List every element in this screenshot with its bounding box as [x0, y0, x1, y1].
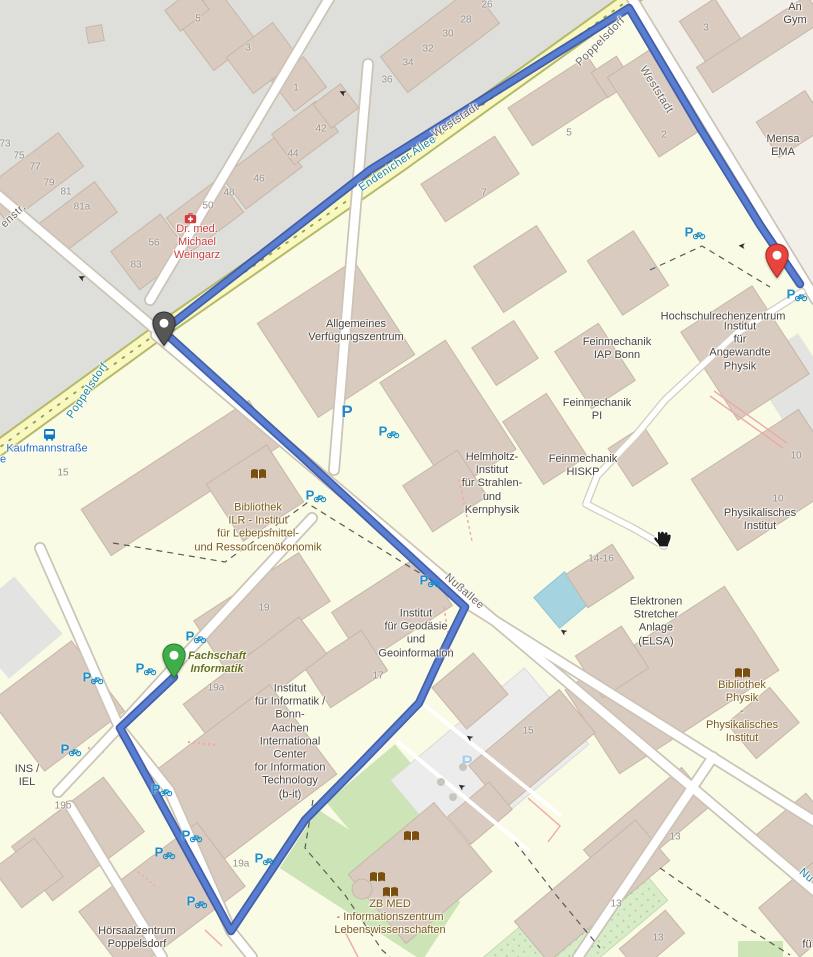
label-weststadt-2: Weststadt [636, 64, 675, 116]
house-number: 75 [13, 151, 24, 162]
house-number: 10 [772, 494, 783, 505]
house-number: 2 [661, 130, 667, 141]
label-enstr-partial: enstr. [0, 201, 29, 231]
house-number: 26 [481, 0, 492, 11]
label-kaufmannstrasse: Kaufmannstraße [6, 442, 87, 455]
house-number: 42 [315, 124, 326, 135]
house-number: 15 [522, 726, 533, 737]
grab-hand-cursor [647, 527, 674, 559]
map-overlay: Allgemeines VerfügungszentrumMensa EMAHo… [0, 0, 813, 957]
bicycle-parking-icon: P [379, 424, 400, 439]
house-number: 34 [402, 58, 413, 69]
house-number: 81a [74, 202, 91, 213]
bus-stop-icon [43, 428, 56, 446]
house-number: 77 [29, 162, 40, 173]
oneway-arrow-icon: ➤ [337, 86, 348, 98]
library-book-icon [734, 667, 751, 685]
label-bibliothek-ilr: Bibliothek ILR - Institut für Lebensmitt… [194, 502, 321, 555]
label-poppelsdorf-teal: Poppelsdorf [65, 361, 112, 422]
label-physikalisches-institut: Physikalisches Institut [724, 507, 796, 533]
map-canvas[interactable]: Allgemeines VerfügungszentrumMensa EMAHo… [0, 0, 813, 957]
oneway-arrow-icon: ➤ [464, 731, 476, 744]
bicycle-parking-icon: P [136, 661, 157, 676]
tree-icon [437, 778, 445, 786]
label-feinmechanik-hiskp: Feinmechanik HISKP [549, 453, 617, 479]
house-number: 3 [245, 43, 251, 54]
label-dr-weingarz: Dr. med. Michael Weingarz [174, 223, 220, 263]
start-marker[interactable] [161, 643, 187, 684]
oneway-arrow-icon: ➤ [738, 240, 746, 251]
label-institut-informatik-bit: Institut für Informatik / Bonn- Aachen I… [255, 683, 326, 802]
house-number: 44 [287, 149, 298, 160]
label-elsa: Elektronen Stretcher Anlage (ELSA) [630, 596, 683, 649]
destination-marker[interactable] [764, 243, 790, 284]
house-number: 1 [293, 83, 299, 94]
label-gym-partial: An Gym [783, 1, 806, 27]
house-number: 5 [566, 128, 572, 139]
bicycle-parking-icon: P [186, 629, 207, 644]
house-number: 13 [610, 899, 621, 910]
label-feinmechanik-iap-bonn: Feinmechanik IAP Bonn [583, 336, 651, 362]
label-mensa-ema: Mensa EMA [766, 133, 799, 159]
oneway-arrow-icon: ➤ [558, 625, 570, 638]
label-weststadt-1: Weststadt [430, 101, 482, 141]
house-number: 10 [790, 451, 801, 462]
house-number: 19b [55, 801, 72, 812]
label-helmholtz-institut: Helmholtz- Institut für Strahlen- und Ke… [462, 451, 523, 517]
house-number: 56 [148, 238, 159, 249]
label-fachschaft-informatik: Fachschaft Informatik [188, 650, 246, 676]
house-number: 15 [57, 468, 68, 479]
house-number: 19 [258, 603, 269, 614]
bicycle-parking-icon: P [83, 670, 104, 685]
label-allgemeines-verfuegungszentrum: Allgemeines Verfügungszentrum [308, 318, 403, 344]
bicycle-parking-icon: P [61, 742, 82, 757]
parking-icon: P [461, 752, 472, 772]
bicycle-parking-icon: P [306, 488, 327, 503]
tree-icon [449, 793, 457, 801]
library-book-icon [369, 871, 386, 889]
label-hochschulrechenzentrum: Hochschulrechenzentrum [661, 310, 786, 323]
bicycle-parking-icon: P [182, 828, 203, 843]
via-marker[interactable] [151, 311, 177, 352]
label-feinmechanik-pi: Feinmechanik PI [563, 397, 631, 423]
oneway-arrow-icon: ➤ [456, 780, 468, 793]
label-endenicher-allee: Endenicher Allee [357, 133, 439, 195]
house-number: 19a [208, 683, 225, 694]
bicycle-parking-icon: P [685, 225, 706, 240]
house-number: 81 [60, 187, 71, 198]
house-number: 14-16 [588, 554, 614, 565]
library-book-icon [250, 468, 267, 486]
bicycle-parking-icon: P [420, 573, 441, 588]
label-institut-geodaesie: Institut für Geodäsie und Geoinformation [378, 608, 453, 661]
house-number: 13 [652, 933, 663, 944]
house-number: 19a [233, 859, 250, 870]
label-stop-partial: e [0, 453, 6, 466]
house-number: 28 [460, 15, 471, 26]
house-number: 48 [223, 188, 234, 199]
house-number: 79 [43, 178, 54, 189]
first-aid-icon [184, 211, 197, 229]
label-institut-angewandte-physik: Institut für Angewandte Physik [704, 321, 777, 374]
house-number: 5 [195, 14, 201, 25]
house-number: 17 [372, 671, 383, 682]
house-number: 73 [0, 139, 11, 150]
label-nussallee: Nußallee [442, 571, 487, 612]
house-number: 46 [253, 174, 264, 185]
library-book-icon [382, 886, 399, 904]
library-book-icon [403, 830, 420, 848]
house-number: 7 [481, 188, 487, 199]
oneway-arrow-icon: ➤ [76, 271, 87, 283]
bicycle-parking-icon: P [155, 845, 176, 860]
label-fu-partial: fü [802, 938, 811, 951]
bicycle-parking-icon: P [787, 287, 808, 302]
house-number: 36 [381, 75, 392, 86]
label-nussallee-partial: Nu [796, 866, 813, 886]
bicycle-parking-icon: P [152, 782, 173, 797]
house-number: 30 [442, 29, 453, 40]
label-poppelsdorf-gray: Poppelsdorf [574, 15, 629, 70]
bicycle-parking-icon: P [187, 894, 208, 909]
label-zb-med: ZB MED - Informationszentrum Lebenswisse… [334, 898, 445, 938]
house-number: 50 [202, 201, 213, 212]
label-hoersaalzentrum-poppelsdorf: Hörsaalzentrum Poppelsdorf [98, 925, 176, 951]
house-number: 83 [130, 260, 141, 271]
parking-icon: P [341, 402, 352, 422]
house-number: 3 [703, 23, 709, 34]
label-bibliothek-physik: Bibliothek Physik - Physikalisches Insti… [706, 679, 778, 745]
tree-icon [459, 763, 467, 771]
label-ins-iel: INS / IEL [15, 763, 39, 789]
house-number: 32 [422, 44, 433, 55]
bicycle-parking-icon: P [255, 851, 276, 866]
house-number: 13 [669, 832, 680, 843]
